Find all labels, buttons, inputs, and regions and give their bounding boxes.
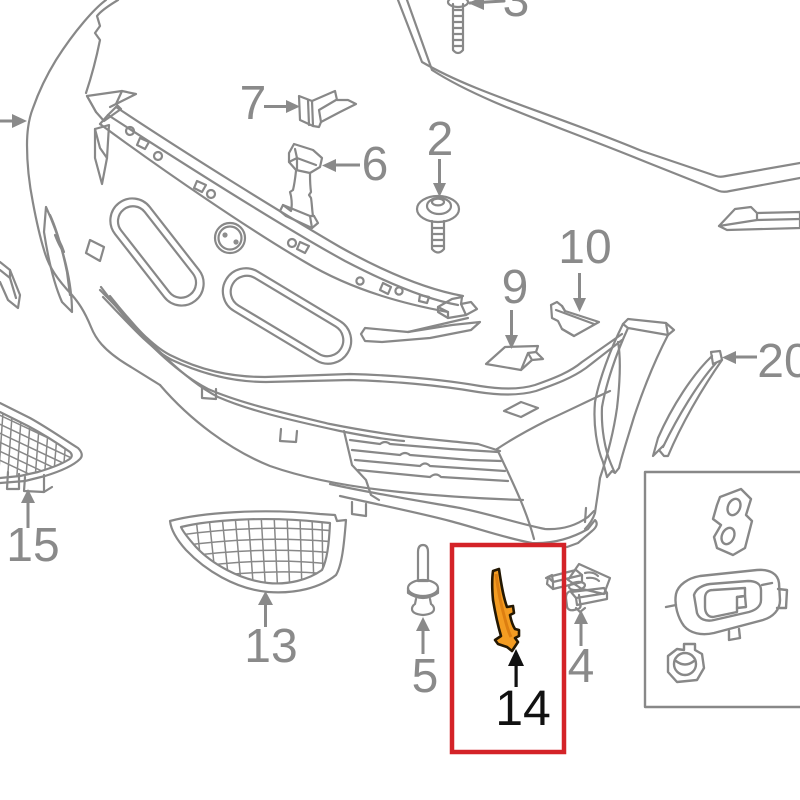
svg-text:2: 2 xyxy=(427,113,454,166)
svg-text:14: 14 xyxy=(495,680,551,736)
svg-text:3: 3 xyxy=(503,0,530,27)
svg-text:13: 13 xyxy=(244,620,297,673)
svg-text:4: 4 xyxy=(568,640,595,693)
svg-text:20: 20 xyxy=(757,335,800,388)
svg-text:15: 15 xyxy=(6,519,59,572)
svg-text:9: 9 xyxy=(502,261,529,314)
svg-text:5: 5 xyxy=(412,650,439,703)
svg-text:10: 10 xyxy=(558,221,611,274)
svg-text:7: 7 xyxy=(240,77,267,130)
svg-text:6: 6 xyxy=(362,138,389,191)
